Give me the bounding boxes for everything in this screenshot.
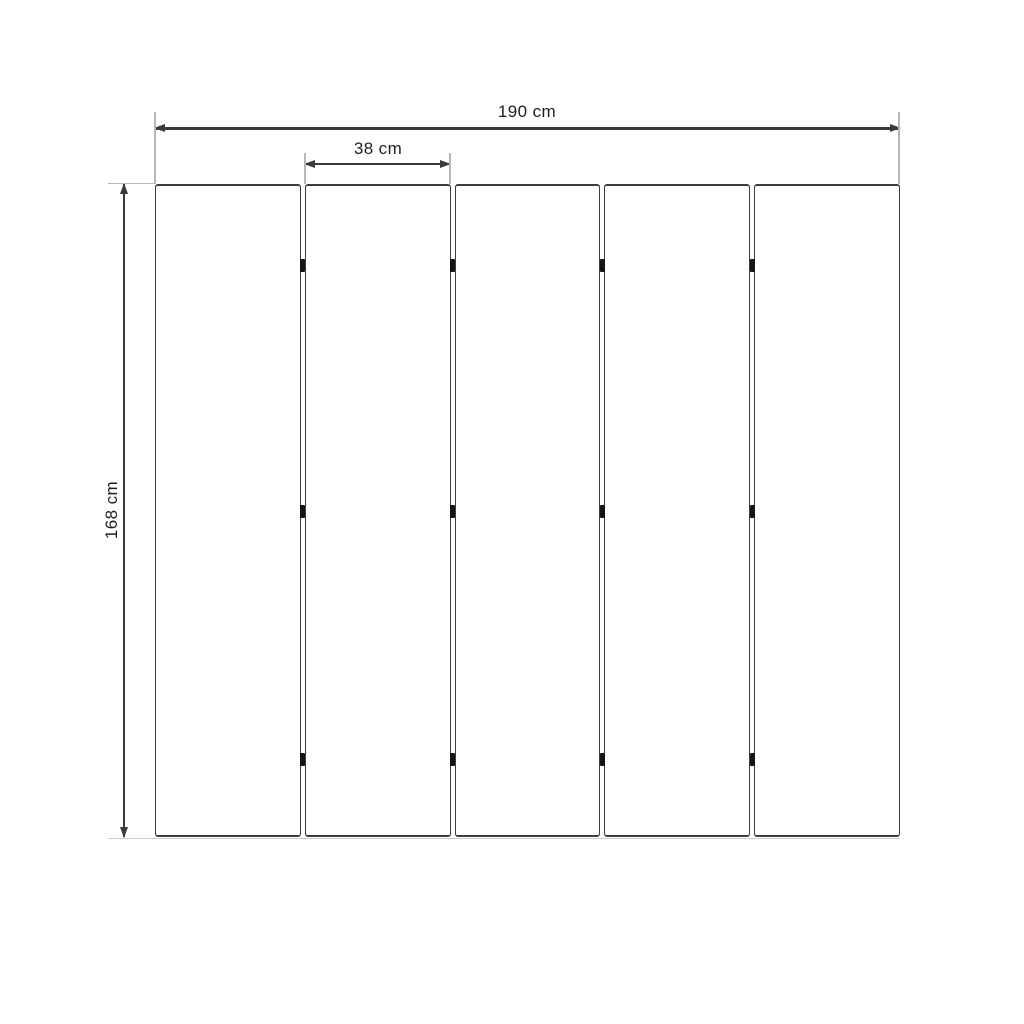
hinge-gap3-1 — [600, 259, 605, 272]
hinge-gap2-1 — [450, 259, 455, 272]
height-dimension-label: 168 cm — [102, 445, 122, 575]
extension-line-panel-left — [304, 153, 305, 184]
extension-line-panel-right — [449, 153, 450, 184]
panel-width-dimension-line — [305, 163, 450, 166]
panel-1 — [155, 184, 301, 837]
panel-width-dimension-label: 38 cm — [308, 139, 448, 159]
hinge-gap2-2 — [450, 505, 455, 518]
hinge-gap1-3 — [300, 753, 305, 766]
total-width-dimension-label: 190 cm — [447, 102, 607, 122]
extension-line-height-top — [108, 183, 155, 184]
panel-2 — [305, 184, 451, 837]
arrowhead-down-icon — [120, 827, 128, 838]
arrowhead-up-icon — [120, 183, 128, 194]
hinge-gap4-2 — [750, 505, 755, 518]
panel-5 — [754, 184, 900, 837]
hinge-gap3-2 — [600, 505, 605, 518]
total-width-dimension-line — [155, 127, 900, 130]
panel-3 — [455, 184, 601, 837]
panel-4 — [604, 184, 750, 837]
extension-line-height-bottom — [108, 838, 900, 839]
hinge-gap4-1 — [750, 259, 755, 272]
folding-screen-dimension-diagram: 190 cm 38 cm 168 cm — [0, 0, 1024, 1024]
hinge-gap1-1 — [300, 259, 305, 272]
hinge-gap1-2 — [300, 505, 305, 518]
height-dimension-line — [123, 184, 126, 837]
extension-line-total-right — [898, 112, 899, 184]
extension-line-total-left — [154, 112, 155, 184]
hinge-gap2-3 — [450, 753, 455, 766]
hinge-gap3-3 — [600, 753, 605, 766]
hinge-gap4-3 — [750, 753, 755, 766]
